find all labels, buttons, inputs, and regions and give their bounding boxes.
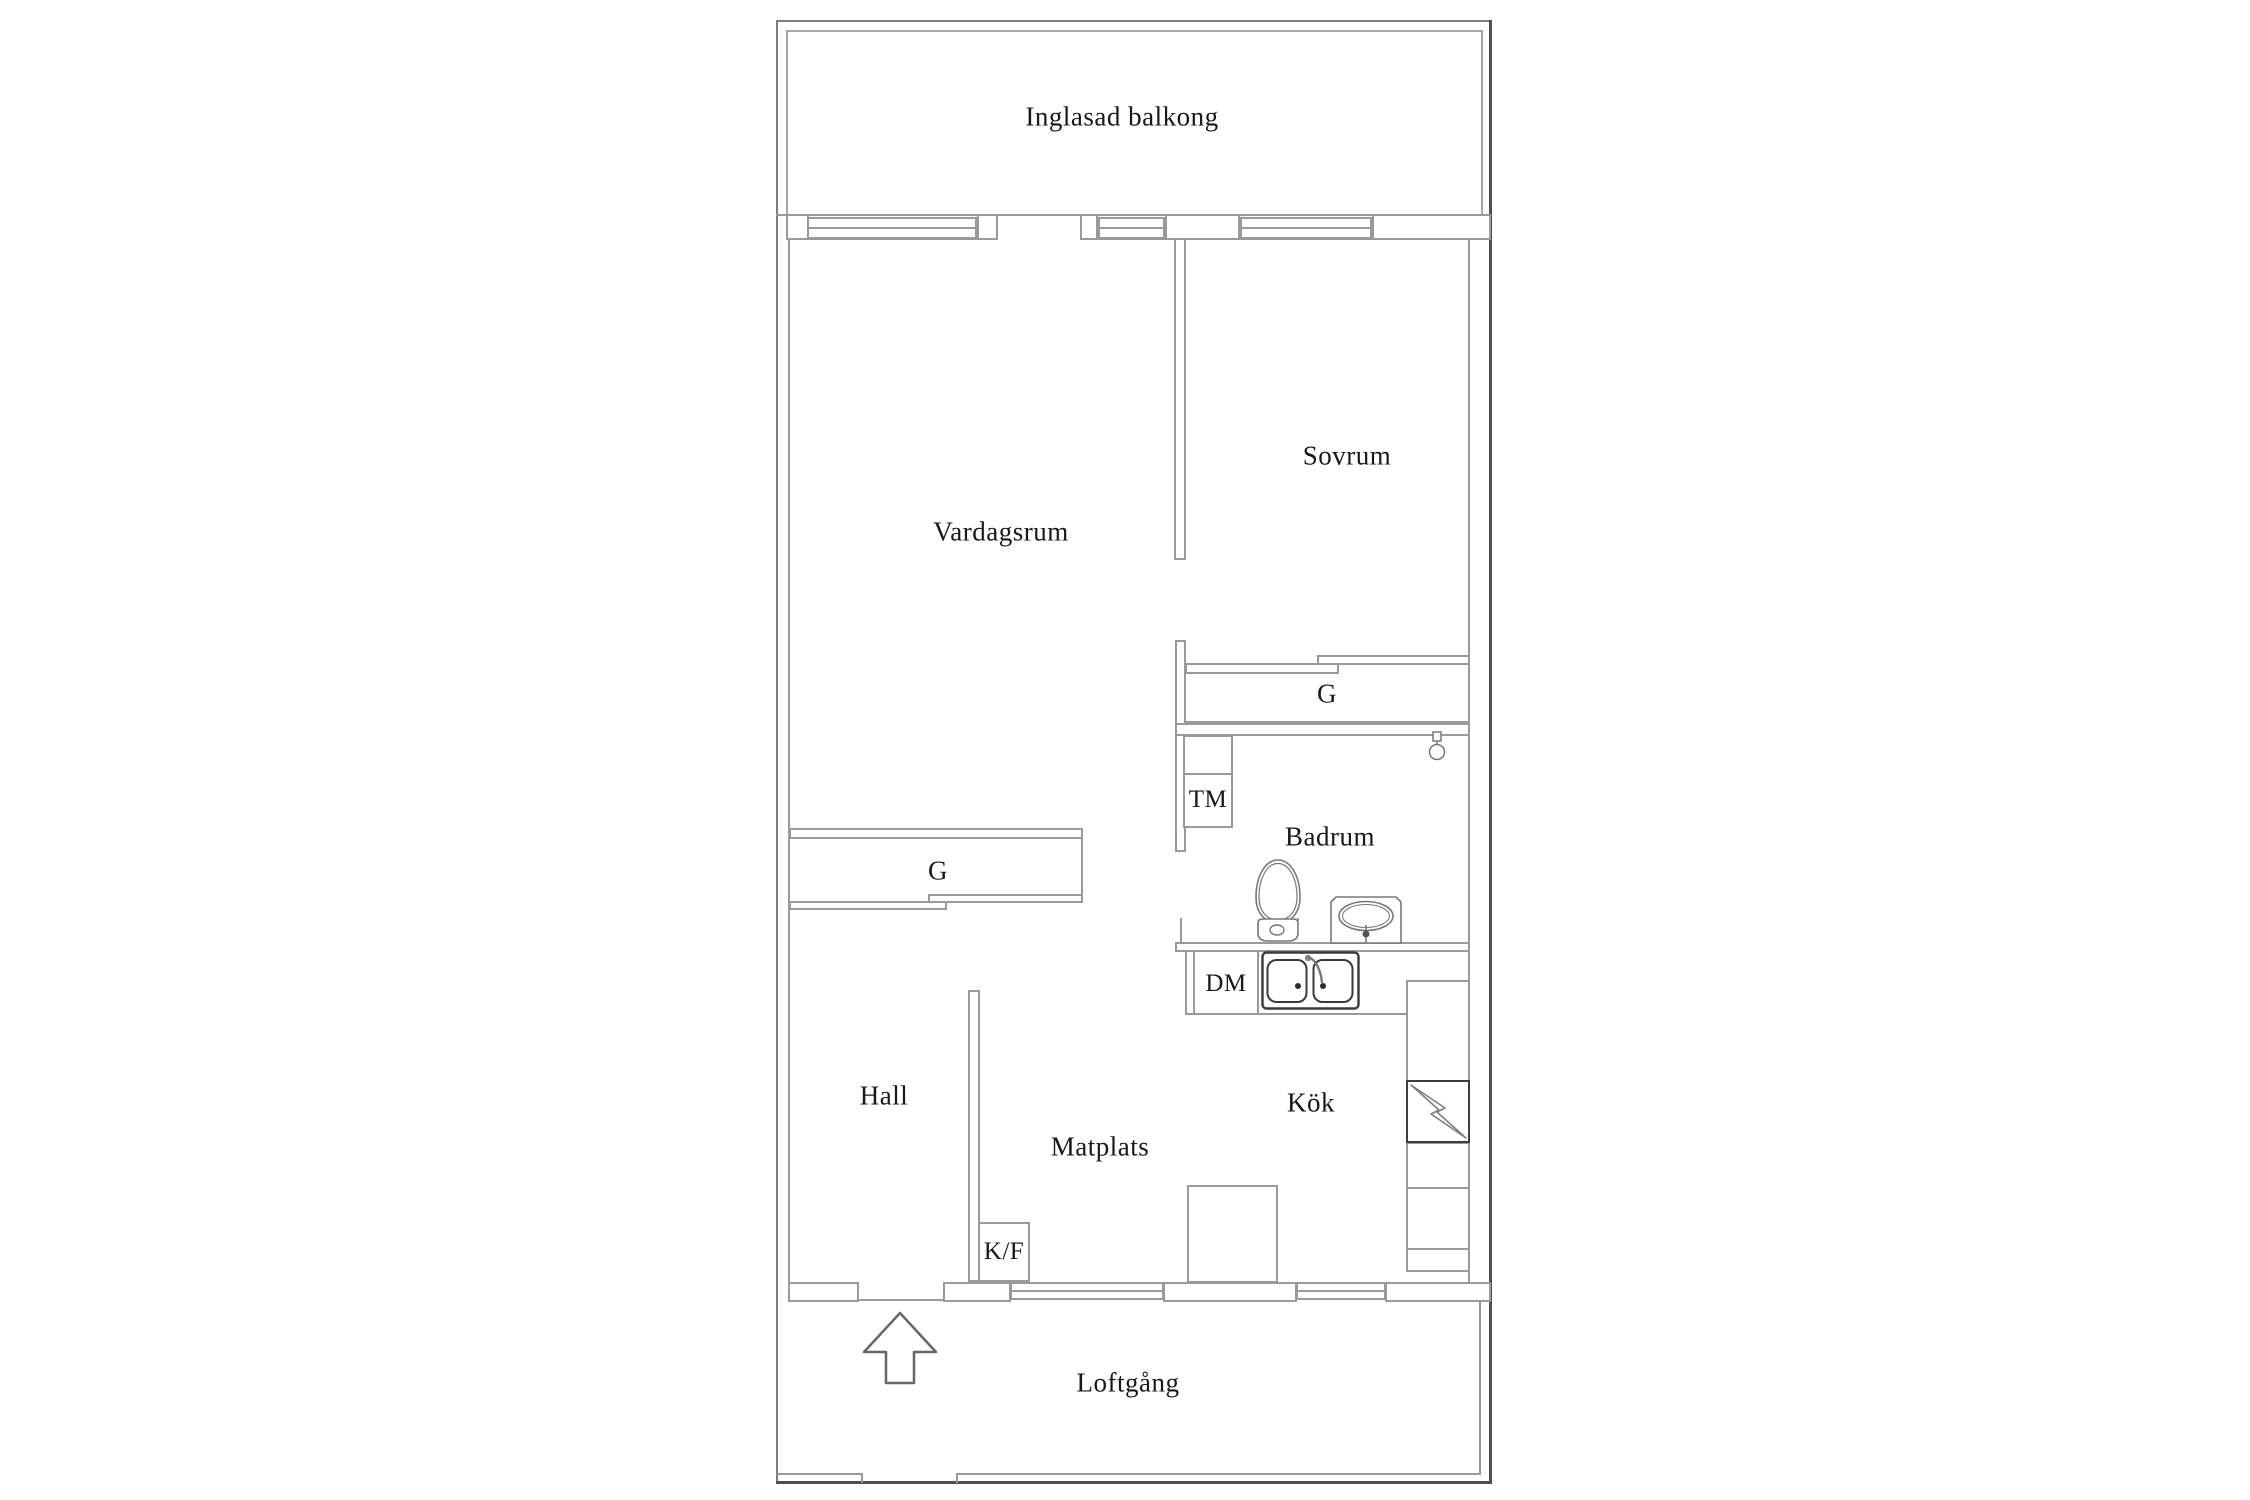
lightning-icon [1408,1082,1468,1141]
room-label-walkway: Loftgång [1077,1368,1180,1399]
kitchen-sink-icon [1261,951,1360,1010]
window-living-room-2 [1098,217,1165,239]
wall-dm-divider [1257,952,1259,1014]
room-label-living-room: Vardagsrum [933,517,1068,548]
walkway-railing [957,1473,1481,1475]
wall-segment [977,214,998,240]
wardrobe-sliding-door [1185,663,1339,674]
cabinet-shelf [1406,1248,1470,1250]
closet-label-bedroom: G [1317,679,1337,710]
cabinet-shelf [1406,1270,1470,1272]
stove-unit [1187,1185,1278,1283]
window-living-room [807,217,977,239]
wardrobe-sliding-door [928,894,1083,903]
entrance-threshold [858,1299,944,1301]
walkway-railing-step [861,1473,863,1483]
wall-outer-left [776,20,778,1484]
wall-living-bottom [789,828,1083,839]
window-dining [1010,1282,1164,1300]
closet-label-hall: G [928,856,948,887]
washing-machine-label: TM [1189,786,1228,814]
walkway-railing-right [1479,1300,1481,1475]
room-label-bedroom: Sovrum [1303,441,1392,472]
window-kitchen [1296,1282,1386,1300]
room-label-bathroom: Badrum [1285,822,1375,853]
floor-drain-icon [1427,731,1447,761]
wall-inner-left [788,215,790,1302]
wall-segment [1372,214,1491,240]
wall-segment [786,214,809,240]
wall-divider-living-bedroom [1174,238,1186,560]
cabinet-shelf [1406,980,1470,982]
entrance-arrow-icon [862,1311,938,1385]
walkway-railing [777,1473,862,1475]
walkway-railing-step [956,1473,958,1483]
cabinet-shelf [1406,1187,1470,1189]
wall-segment [1165,214,1240,240]
room-label-hall: Hall [860,1081,909,1112]
wall-segment [1080,214,1098,240]
wall-segment [1163,1282,1297,1302]
wardrobe-sliding-door [1317,655,1470,665]
room-label-balcony: Inglasad balkong [1025,102,1218,133]
wall-outer-top [776,20,1492,22]
wall-segment [943,1282,1011,1302]
fridge-freezer-label: K/F [984,1238,1024,1266]
wall-counter-bottom [1185,1013,1407,1015]
toilet-icon [1253,859,1303,943]
wall-segment [788,1282,859,1302]
floor-plan: Inglasad balkong Vardagsrum Sovrum G TM … [0,0,2250,1500]
wall-counter-left-2 [1193,952,1195,1014]
wall-counter-left [1185,952,1187,1014]
wall-hall-wardrobe-right [1081,838,1083,896]
wardrobe-sliding-door [789,901,947,910]
wall-outer-bottom [776,1481,1492,1484]
bathroom-cabinet [1183,735,1233,775]
room-label-kitchen: Kök [1287,1088,1335,1119]
wall-segment [1385,1282,1491,1302]
bathroom-sink-icon [1330,896,1402,944]
room-label-dining: Matplats [1051,1132,1150,1163]
window-bedroom [1240,217,1372,239]
dishwasher-label: DM [1205,970,1246,998]
